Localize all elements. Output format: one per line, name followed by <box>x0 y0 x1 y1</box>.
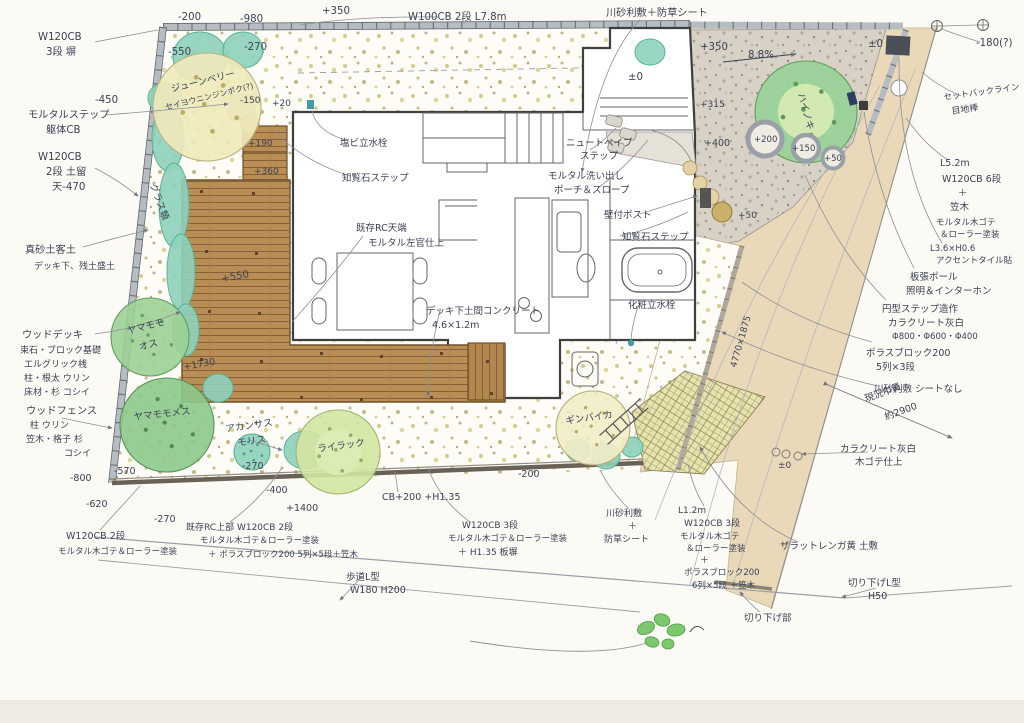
annotation-label: 6列×5段 ＋笠木 <box>692 580 756 591</box>
annotation-label: Φ800・Φ600・Φ400 <box>892 332 978 342</box>
annotation-label: モルタル左官仕上 <box>368 237 445 249</box>
yamamomo-female-texture-dot <box>170 444 174 448</box>
annotation-label: カラクリート灰白 <box>840 443 916 455</box>
annotation-label: -270 <box>242 461 264 472</box>
annotation-label: ＆ローラー塗装 <box>686 543 746 554</box>
annotation-label: +350 <box>322 6 350 17</box>
annotation-label: -150 <box>240 96 261 106</box>
annotation-label: 塩ビ立水栓 <box>340 137 388 149</box>
annotation-label: ±0 <box>778 461 792 471</box>
ginbaika-texture-dot <box>575 430 578 433</box>
annotation-label: +190 <box>248 139 273 149</box>
annotation-label: W120CB 3段 <box>684 517 740 529</box>
june-berry-texture-dot <box>180 110 185 115</box>
annotation-label: アクセントタイル貼 <box>936 255 1013 266</box>
annotation-label: 川砂利敷 シートなし <box>874 383 963 395</box>
annotation-label: 切り下げ部 <box>744 612 792 624</box>
annotation-label: 躯体CB <box>46 123 80 136</box>
light-fixture <box>859 101 868 110</box>
annotation-label: -270 <box>244 42 267 53</box>
annotation-label: W180 H200 <box>350 585 406 596</box>
annotation-label: 笠木 <box>950 201 970 213</box>
annotation-label: W120CB 3段 <box>462 519 518 531</box>
annotation-label: モルタル木ゴテ <box>936 217 996 228</box>
yamamomo-male-texture-dot <box>131 339 135 343</box>
annotation-label: -200 <box>518 469 540 480</box>
annotation-label: +350 <box>700 42 728 53</box>
annotation-label: +200 <box>754 135 777 145</box>
annotation-label: L3.6×H0.6 <box>930 244 975 254</box>
annotation-label: 円型ステップ造作 <box>882 303 959 315</box>
annotation-label: ±0 <box>628 72 643 83</box>
accent-tile-gate-wall <box>885 35 910 55</box>
acanthus-mollis-texture-dot <box>261 454 264 457</box>
deco-tap-icon <box>628 340 634 346</box>
scan-shadow <box>0 700 1024 723</box>
pvc-tap-icon <box>307 100 314 109</box>
annotation-label: 川砂利敷 <box>606 507 642 519</box>
annotation-label: 板張ポール <box>910 271 958 283</box>
june-berry-texture-dot <box>234 115 239 120</box>
annotation-label: -450 <box>95 95 118 106</box>
annotation-label: ＋ H1.35 板塀 <box>458 546 518 558</box>
yamamomo-male-texture-dot <box>152 353 156 357</box>
annotation-label: W120CB 6段 <box>942 173 1002 185</box>
annotation-label: モルタルステップ <box>28 109 110 121</box>
annotation-label: 笠木・格子 杉 <box>26 433 83 445</box>
annotation-label: ＋ ポラスブロック200 5列×5段＋笠木 <box>208 549 358 560</box>
annotation-label: -180(?) <box>976 38 1013 49</box>
annotation-label: ウッドデッキ <box>22 328 83 341</box>
annotation-label: W100CB 2段 L7.8m <box>408 10 507 23</box>
acanthus-mollis-texture-dot <box>243 452 246 455</box>
annotation-label: +400 <box>704 138 730 149</box>
site-plan-canvas: W120CB3段 塀-200-980+350W100CB 2段 L7.8m川砂利… <box>0 0 1024 723</box>
annotation-label: 床材・杉 コシイ <box>24 386 90 398</box>
annotation-label: 天-470 <box>52 182 85 193</box>
annotation-label: ステップ <box>580 151 619 162</box>
annotation-label: ＋ <box>700 555 709 566</box>
annotation-label: +360 <box>254 167 279 177</box>
annotation-label: 既存RC天端 <box>356 222 407 234</box>
annotation-label: L5.2m <box>940 158 970 169</box>
lilac-texture-dot <box>359 459 363 463</box>
annotation-label: +150 <box>792 144 815 154</box>
wall-post <box>700 188 711 208</box>
annotation-label: デッキ下、残土盛土 <box>34 260 115 272</box>
acanthus-mollis-texture-dot <box>250 450 253 453</box>
annotation-label: ＋ <box>958 188 968 199</box>
annotation-label: -200 <box>178 12 201 23</box>
annotation-label: 既存RC上部 W120CB 2段 <box>186 521 293 533</box>
yamamomo-female-texture-dot <box>191 432 195 436</box>
annotation-label: 防草シート <box>604 533 649 545</box>
annotation-label: W120CB <box>38 32 82 43</box>
annotation-label: ニュートペイブ <box>566 137 633 149</box>
tsukubai-stone <box>712 202 732 222</box>
annotation-label: 切り下げL型 <box>848 578 901 589</box>
annotation-label: -800 <box>70 473 92 484</box>
teal-shrub <box>167 234 195 310</box>
lilac-texture-dot <box>340 469 344 473</box>
annotation-label: -550 <box>168 47 191 58</box>
annotation-label: -980 <box>240 14 263 25</box>
annotation-label: +1400 <box>286 503 318 514</box>
annotation-label: +50 <box>738 211 757 221</box>
garden-plan-sheet: W120CB3段 塀-200-980+350W100CB 2段 L7.8m川砂利… <box>0 0 1024 723</box>
lilac-texture-dot <box>349 433 353 437</box>
hainoki-texture-dot <box>794 82 799 87</box>
annotation-label: モルタル洗い出し <box>548 170 624 182</box>
annotation-label: ＆ローラー塗装 <box>940 229 1000 240</box>
ginbaika-texture-dot <box>612 434 615 437</box>
annotation-label: L1.2m <box>678 506 706 516</box>
annotation-label: 知覧石ステップ <box>342 172 409 184</box>
annotation-label: ポラスブロック200 <box>684 567 760 578</box>
annotation-label: モルタル木ゴテ <box>680 531 740 542</box>
annotation-label: エルグリック桟 <box>24 358 87 370</box>
annotation-label: モルタル木ゴテ＆ローラー塗装 <box>200 535 320 546</box>
annotation-label: ポーチ＆スロープ <box>554 185 630 196</box>
annotation-label: 8.8% <box>748 50 774 61</box>
annotation-label: 川砂利敷＋防草シート <box>606 6 708 19</box>
teal-shrub <box>635 39 665 65</box>
teal-shrub <box>203 374 233 402</box>
annotation-label: 束石・ブロック基礎 <box>20 344 101 356</box>
annotation-label: 4.6×1.2m <box>432 320 479 331</box>
annotation-label: 真砂土客土 <box>25 243 76 256</box>
yamamomo-female <box>120 378 214 472</box>
annotation-label: モルタル木ゴテ＆ローラー塗装 <box>448 533 568 544</box>
annotation-label: +50 <box>824 154 842 164</box>
ginbaika-texture-dot <box>584 406 587 409</box>
annotation-label: W120CB 2段 <box>66 530 126 542</box>
annotation-label: コシイ <box>64 449 91 459</box>
hainoki-texture-dot <box>819 89 824 94</box>
annotation-label: H50 <box>868 591 887 602</box>
annotation-label: 3段 塀 <box>46 45 76 58</box>
yamamomo-female-texture-dot <box>155 397 159 401</box>
annotation-label: -570 <box>114 466 136 477</box>
annotation-label: 柱 ウリン <box>30 419 69 431</box>
yamamomo-female-texture-dot <box>144 428 148 432</box>
annotation-label: -400 <box>266 485 288 496</box>
annotation-label: カラクリート灰白 <box>888 317 964 329</box>
annotation-label: 歩道L型 <box>346 571 380 583</box>
annotation-label: +20 <box>272 99 291 109</box>
ginbaika-texture-dot <box>589 424 592 427</box>
yamamomo-male-texture-dot <box>170 343 174 347</box>
june-berry-texture-dot <box>210 129 215 134</box>
hainoki-texture-dot <box>781 115 786 120</box>
annotation-label: 照明＆インターホン <box>906 286 992 297</box>
ginbaika-texture-dot <box>595 443 598 446</box>
annotation-label: ＋ <box>628 521 637 532</box>
annotation-label: ±0 <box>868 39 883 50</box>
yamamomo-male <box>111 298 189 376</box>
yamamomo-male-texture-dot <box>140 314 144 318</box>
hainoki-texture-dot <box>832 120 837 125</box>
annotation-label: 知覧石ステップ <box>622 231 689 243</box>
annotation-label: 2段 土留 <box>46 165 86 178</box>
lilac-texture-dot <box>328 427 332 431</box>
annotation-label: デッキ下土間コンクリート <box>426 305 540 317</box>
annotation-label: 化粧立水栓 <box>628 299 676 311</box>
annotation-label: ウッドフェンス <box>26 405 97 417</box>
annotation-label: W120CB <box>38 152 82 163</box>
annotation-label: +315 <box>700 100 725 110</box>
annotation-label: モルタル木ゴテ＆ローラー塗装 <box>58 546 178 557</box>
annotation-label: ポラスブロック200 <box>866 347 950 359</box>
annotation-label: 柱・根太 ウリン <box>24 372 90 384</box>
annotation-label: 壁付ポスト <box>604 209 652 221</box>
annotation-label: CB+200 +H1.35 <box>382 492 461 503</box>
yamamomo-male-texture-dot <box>146 333 150 337</box>
annotation-label: 5列×3段 <box>876 361 916 373</box>
ginbaika <box>556 391 630 465</box>
annotation-label: ザラットレンガ黄 土敷 <box>780 540 879 552</box>
annotation-label: -270 <box>154 514 176 525</box>
annotation-label: 木ゴテ仕上 <box>855 456 903 468</box>
annotation-label: -620 <box>86 499 108 510</box>
yamamomo-female-texture-dot <box>163 421 167 425</box>
